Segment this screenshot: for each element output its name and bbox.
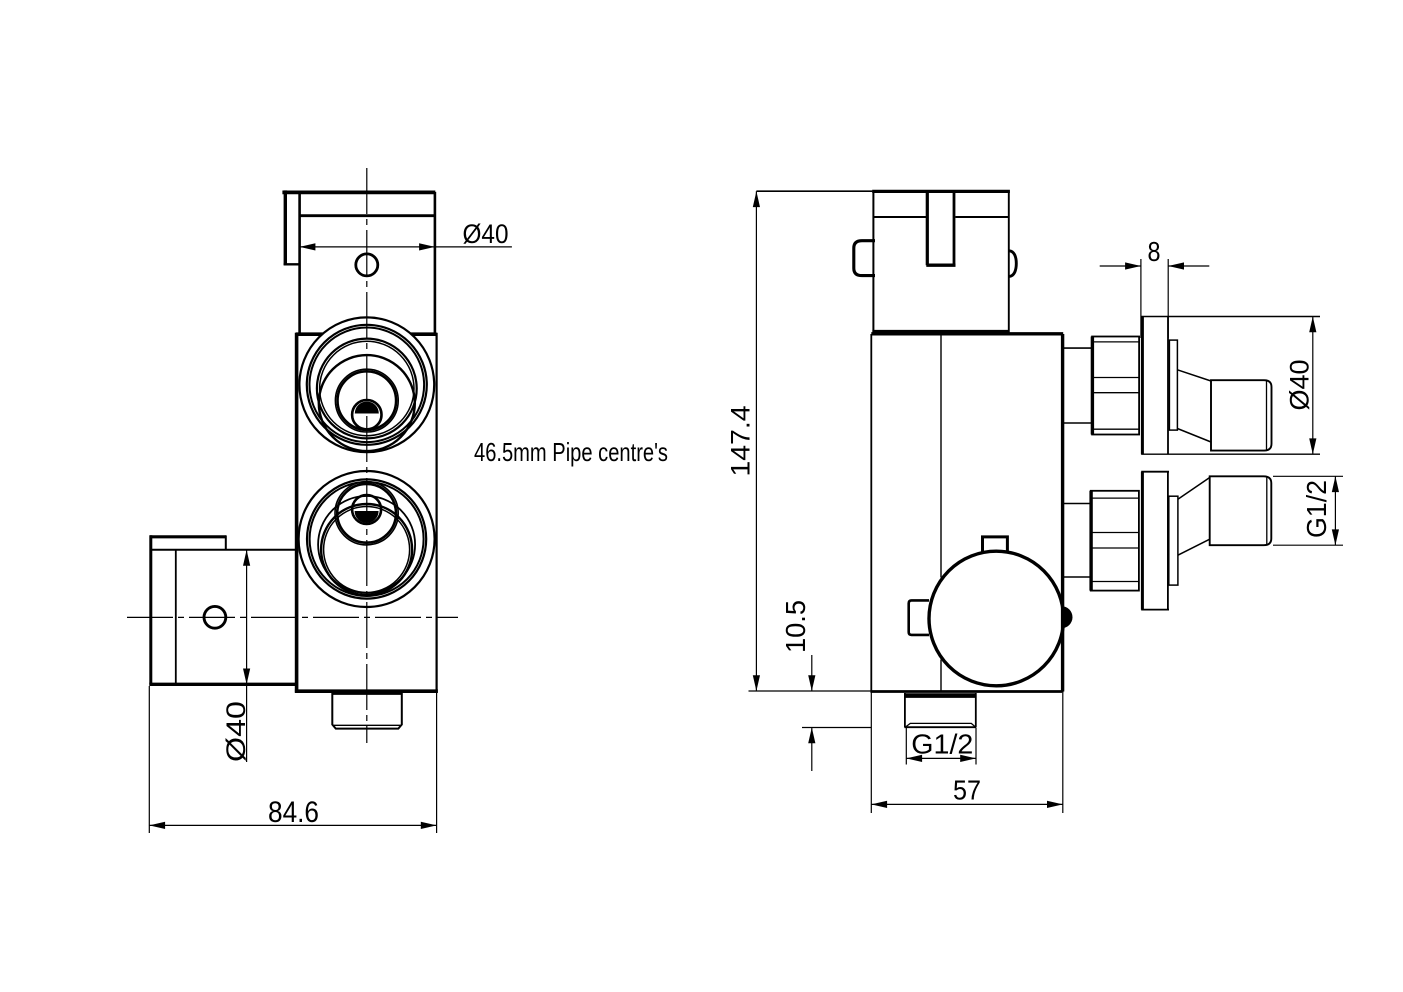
svg-text:57: 57 [953,775,981,806]
svg-text:G1/2: G1/2 [911,729,973,760]
svg-text:Ø40: Ø40 [1285,360,1315,411]
svg-text:8: 8 [1148,236,1161,267]
svg-text:10.5: 10.5 [780,600,811,653]
svg-text:84.6: 84.6 [268,796,319,829]
svg-text:G1/2: G1/2 [1301,480,1332,538]
svg-text:Ø40: Ø40 [463,219,509,249]
svg-text:147.4: 147.4 [726,406,756,477]
svg-text:46.5mm Pipe centre's: 46.5mm Pipe centre's [474,437,668,467]
svg-text:Ø40: Ø40 [221,701,251,762]
